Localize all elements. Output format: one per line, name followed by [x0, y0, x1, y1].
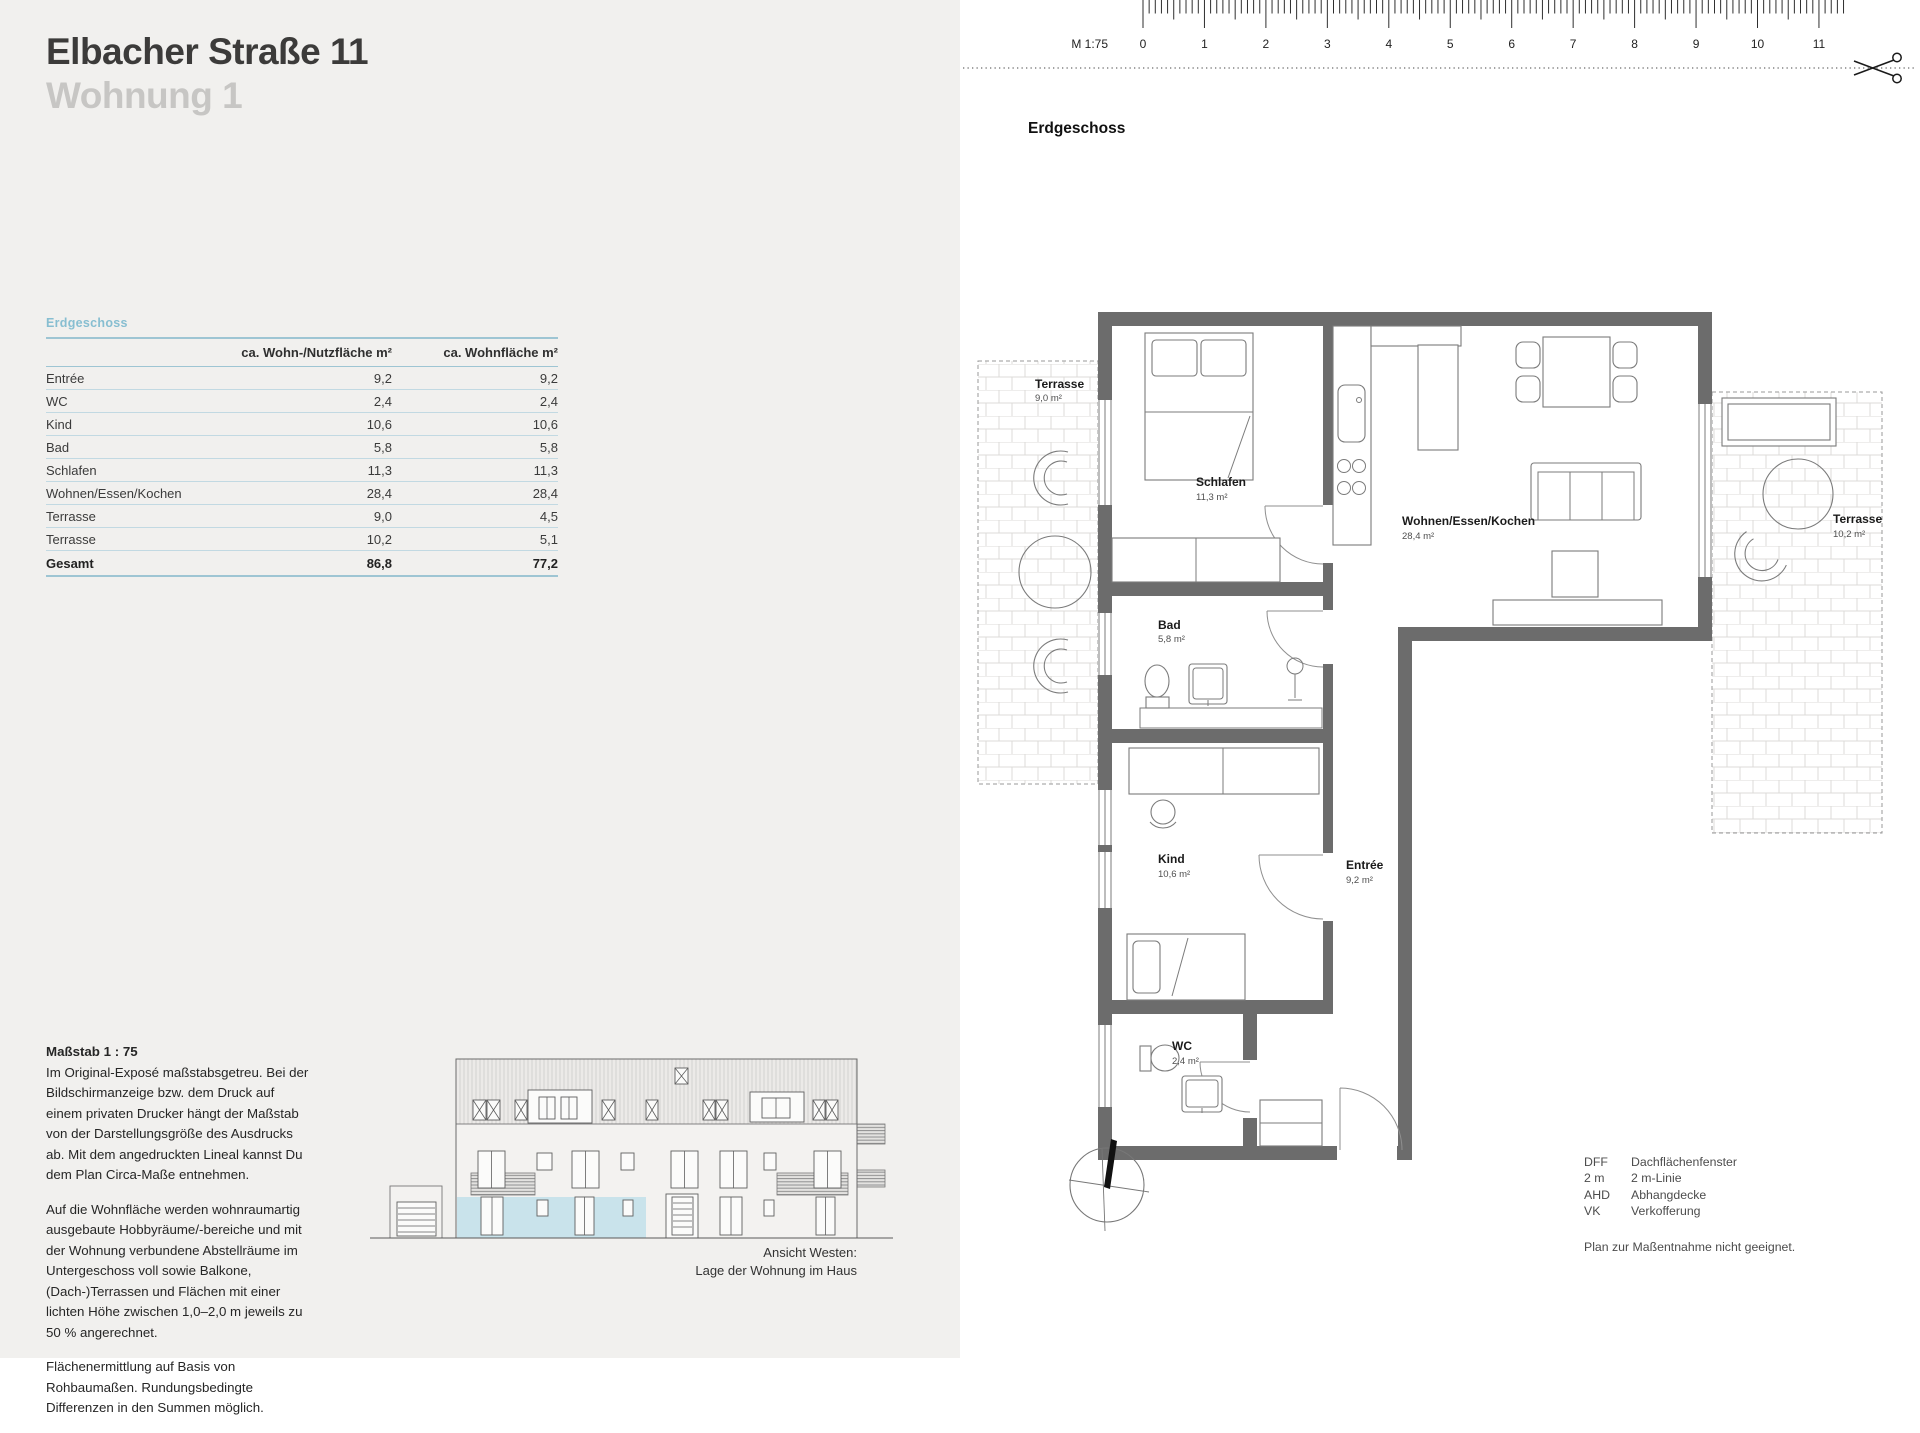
vanity-bad: [1140, 708, 1322, 728]
value-cell: 5,8: [392, 436, 558, 459]
table-section-label: Erdgeschoss: [46, 316, 558, 330]
tv-sideboard: [1493, 600, 1662, 625]
kitchen-sink: [1338, 385, 1365, 442]
value-cell: 11,3: [226, 459, 392, 482]
shower-bad: [1287, 658, 1303, 700]
table-body: Entrée9,29,2WC2,42,4Kind10,610,6Bad5,85,…: [46, 367, 558, 551]
table-row: Entrée9,29,2: [46, 367, 558, 390]
window-kind-1: [1098, 790, 1112, 845]
room-label-entree: Entrée: [1346, 858, 1384, 872]
legend-label: 2 m-Linie: [1631, 1171, 1682, 1185]
value-cell: 9,2: [226, 367, 392, 390]
floorplan-drawing: Terrasse 9,0 m² Schlafen 11,3 m² Wohnen/…: [960, 0, 1920, 1358]
window-schlafen: [1098, 400, 1112, 505]
value-cell: 28,4: [392, 482, 558, 505]
value-cell: 28,4: [226, 482, 392, 505]
window-wc: [1098, 1025, 1112, 1107]
total-label: Gesamt: [46, 551, 226, 577]
room-area-entree: 9,2 m²: [1346, 875, 1373, 886]
legend-label: Abhangdecke: [1631, 1188, 1706, 1202]
col-header-wohnflaeche: ca. Wohnfläche m²: [392, 338, 558, 367]
room-cell: Kind: [46, 413, 226, 436]
table-row: Bad5,85,8: [46, 436, 558, 459]
terrace-east: [1712, 392, 1882, 833]
table-row: Wohnen/Essen/Kochen28,428,4: [46, 482, 558, 505]
room-area-kind: 10,6 m²: [1158, 869, 1190, 880]
area-table-grid: ca. Wohn-/Nutzfläche m² ca. Wohnfläche m…: [46, 337, 558, 577]
sink-bad: [1189, 664, 1227, 704]
table-row: Kind10,610,6: [46, 413, 558, 436]
table-header-row: ca. Wohn-/Nutzfläche m² ca. Wohnfläche m…: [46, 338, 558, 367]
room-label-terrasse-east: Terrasse: [1833, 512, 1882, 526]
room-area-terrasse-west: 9,0 m²: [1035, 393, 1062, 404]
elevation-garage: [390, 1186, 442, 1238]
scale-notes: Maßstab 1 : 75 Im Original-Exposé maßsta…: [46, 1042, 312, 1433]
page-header: Elbacher Straße 11 Wohnung 1: [46, 30, 368, 117]
room-label-wc: WC: [1172, 1039, 1192, 1053]
total-nutzflaeche: 86,8: [226, 551, 392, 577]
kitchen: [1333, 326, 1461, 545]
legend-note: Plan zur Maßentnahme nicht geeignet.: [1584, 1240, 1795, 1254]
terrace-west: [978, 361, 1098, 784]
notes-heading: Maßstab 1 : 75: [46, 1042, 312, 1063]
value-cell: 9,2: [392, 367, 558, 390]
room-label-terrasse-west: Terrasse: [1035, 377, 1084, 391]
table-row: WC2,42,4: [46, 390, 558, 413]
room-area-wc: 2,4 m²: [1172, 1056, 1199, 1067]
room-area-schlafen: 11,3 m²: [1196, 492, 1228, 503]
toilet-bad: [1146, 697, 1169, 708]
table-row: Schlafen11,311,3: [46, 459, 558, 482]
total-wohnflaeche: 77,2: [392, 551, 558, 577]
page-subtitle: Wohnung 1: [46, 74, 368, 118]
room-cell: Schlafen: [46, 459, 226, 482]
value-cell: 10,6: [392, 413, 558, 436]
value-cell: 2,4: [226, 390, 392, 413]
legend-abbr: 2 m: [1584, 1170, 1631, 1186]
window-bad: [1098, 613, 1112, 675]
entree-cabinet: [1260, 1100, 1322, 1146]
legend-abbr: DFF: [1584, 1154, 1631, 1170]
bathroom-fixtures: [1140, 658, 1322, 728]
room-cell: Terrasse: [46, 505, 226, 528]
door-entrance: [1340, 1088, 1402, 1150]
table-row: Terrasse10,25,1: [46, 528, 558, 551]
notes-paragraph-2: Auf die Wohnfläche werden wohnraumartig …: [46, 1200, 312, 1344]
room-cell: Terrasse: [46, 528, 226, 551]
legend-abbr: AHD: [1584, 1187, 1631, 1203]
kind-furniture: [1127, 748, 1319, 1000]
legend-row: AHDAbhangdecke: [1584, 1187, 1737, 1203]
room-label-bad: Bad: [1158, 618, 1181, 632]
bed-double: [1145, 333, 1253, 480]
toilet-wc: [1140, 1046, 1151, 1071]
legend-row: VKVerkofferung: [1584, 1203, 1737, 1219]
legend-items: DFFDachflächenfenster2 m2 m-LinieAHDAbha…: [1584, 1154, 1737, 1220]
legend-abbr: VK: [1584, 1203, 1631, 1219]
legend-row: DFFDachflächenfenster: [1584, 1154, 1737, 1170]
value-cell: 11,3: [392, 459, 558, 482]
room-label-kind: Kind: [1158, 852, 1185, 866]
value-cell: 10,6: [226, 413, 392, 436]
notes-paragraph-3: Flächenermittlung auf Basis von Rohbauma…: [46, 1357, 312, 1419]
value-cell: 5,8: [226, 436, 392, 459]
legend-label: Dachflächenfenster: [1631, 1155, 1737, 1169]
kitchen-island: [1418, 345, 1458, 450]
sofa: [1531, 463, 1641, 520]
value-cell: 9,0: [226, 505, 392, 528]
window-wohnen-terrasse: [1698, 404, 1712, 577]
legend-label: Verkofferung: [1631, 1204, 1701, 1218]
area-table: Erdgeschoss ca. Wohn-/Nutzfläche m² ca. …: [46, 316, 558, 577]
doors: [1200, 506, 1402, 1150]
coffee-table: [1552, 551, 1598, 597]
plan-legend: DFFDachflächenfenster2 m2 m-LinieAHDAbha…: [1584, 1154, 1737, 1220]
room-area-bad: 5,8 m²: [1158, 634, 1185, 645]
right-page-panel: 01234567891011 M 1:75 Erdgeschoss: [960, 0, 1920, 1358]
room-cell: Entrée: [46, 367, 226, 390]
window-kind-2: [1098, 852, 1112, 908]
room-label-wohnen: Wohnen/Essen/Kochen: [1402, 514, 1535, 528]
elevation-caption-line2: Lage der Wohnung im Haus: [597, 1262, 857, 1280]
room-area-terrasse-east: 10,2 m²: [1833, 529, 1865, 540]
door-bad: [1267, 611, 1323, 667]
elevation-caption-line1: Ansicht Westen:: [597, 1244, 857, 1262]
room-cell: Bad: [46, 436, 226, 459]
wardrobe-kind: [1129, 748, 1319, 794]
door-kind: [1259, 855, 1323, 919]
value-cell: 10,2: [226, 528, 392, 551]
room-cell: Wohnen/Essen/Kochen: [46, 482, 226, 505]
page-title: Elbacher Straße 11: [46, 30, 368, 74]
table-row: Terrasse9,04,5: [46, 505, 558, 528]
elevation-caption: Ansicht Westen: Lage der Wohnung im Haus: [597, 1244, 857, 1280]
room-area-wohnen: 28,4 m²: [1402, 531, 1434, 542]
value-cell: 4,5: [392, 505, 558, 528]
room-cell: WC: [46, 390, 226, 413]
value-cell: 2,4: [392, 390, 558, 413]
notes-paragraph-1: Im Original-Exposé maßstabsgetreu. Bei d…: [46, 1063, 312, 1186]
bed-single: [1127, 934, 1245, 1000]
legend-row: 2 m2 m-Linie: [1584, 1170, 1737, 1186]
table-total-row: Gesamt 86,8 77,2: [46, 551, 558, 577]
col-header-nutzflaeche: ca. Wohn-/Nutzfläche m²: [226, 338, 392, 367]
dining-set: [1516, 337, 1637, 407]
stool-kind: [1151, 800, 1175, 824]
value-cell: 5,1: [392, 528, 558, 551]
room-label-schlafen: Schlafen: [1196, 475, 1246, 489]
left-page-panel: Elbacher Straße 11 Wohnung 1 Erdgeschoss…: [0, 0, 960, 1358]
col-header-room: [46, 338, 226, 367]
